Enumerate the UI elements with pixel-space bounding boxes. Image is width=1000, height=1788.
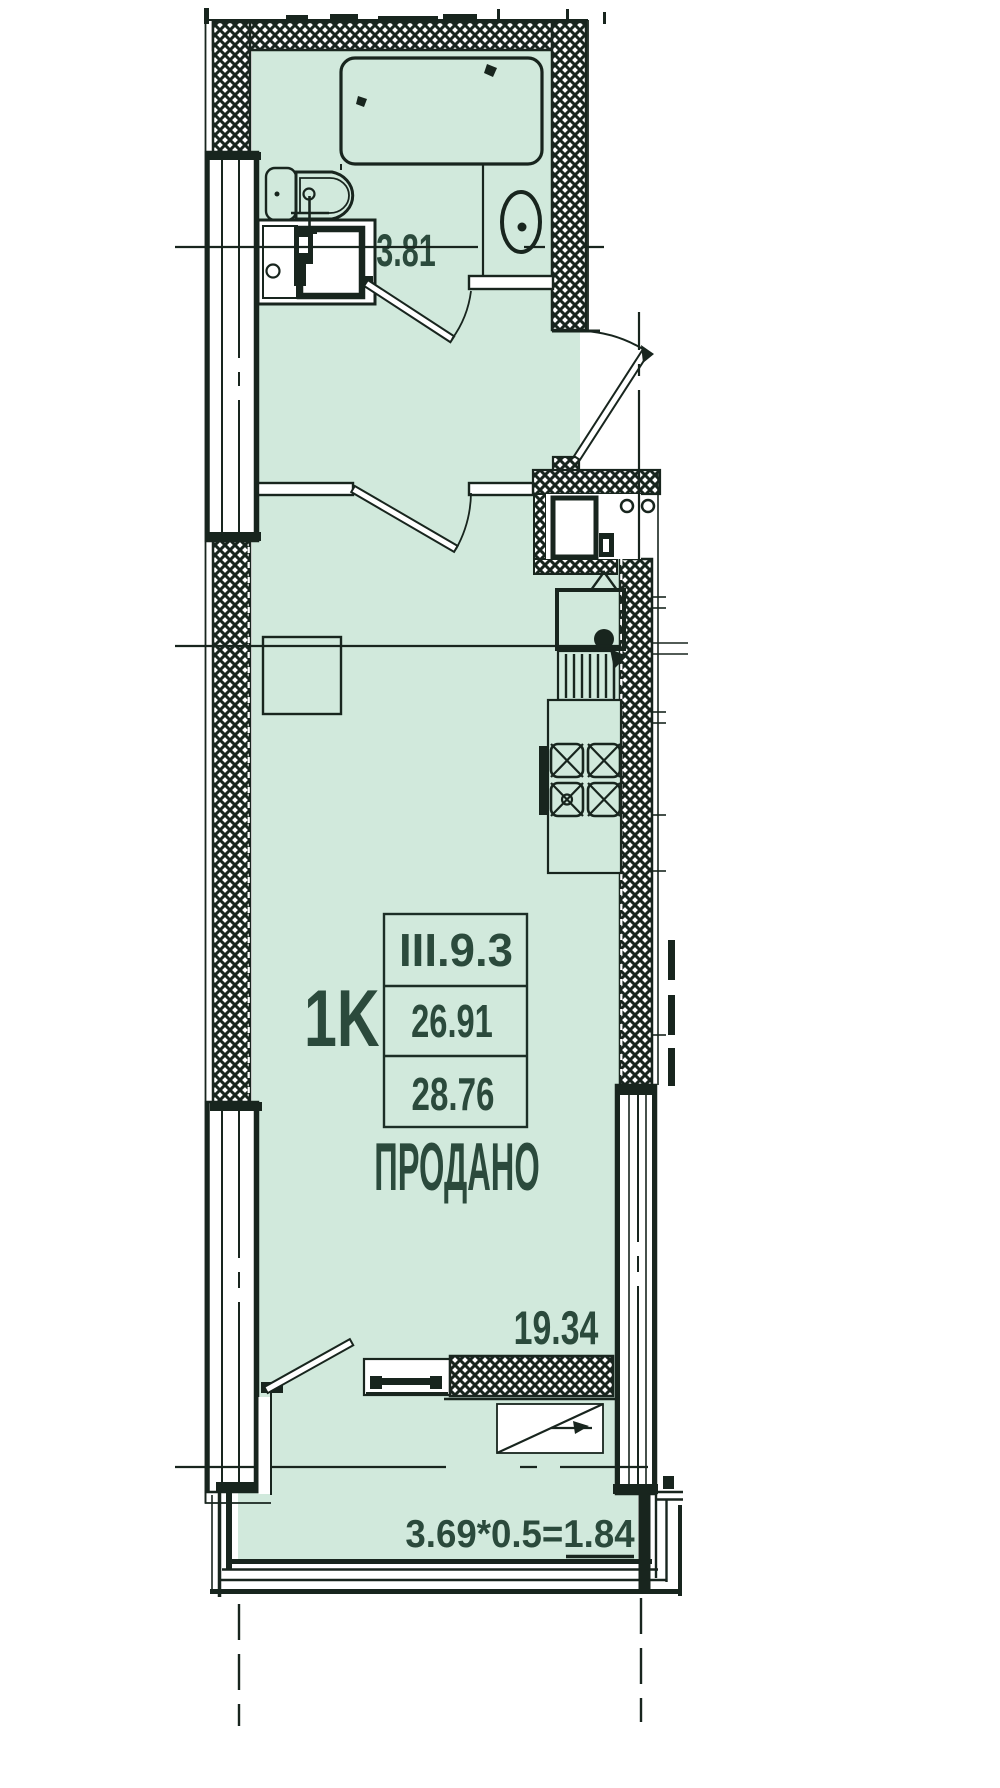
svg-text:1K: 1K [304, 974, 380, 1064]
svg-text:III.9.3: III.9.3 [399, 925, 513, 976]
svg-text:19.34: 19.34 [514, 1302, 599, 1355]
svg-text:ПРОДАНО: ПРОДАНО [374, 1130, 540, 1205]
svg-text:3.81: 3.81 [376, 226, 436, 276]
svg-text:26.91: 26.91 [411, 997, 493, 1048]
svg-text:3.69*0.5=1.84: 3.69*0.5=1.84 [405, 1513, 634, 1556]
svg-text:28.76: 28.76 [412, 1070, 495, 1120]
